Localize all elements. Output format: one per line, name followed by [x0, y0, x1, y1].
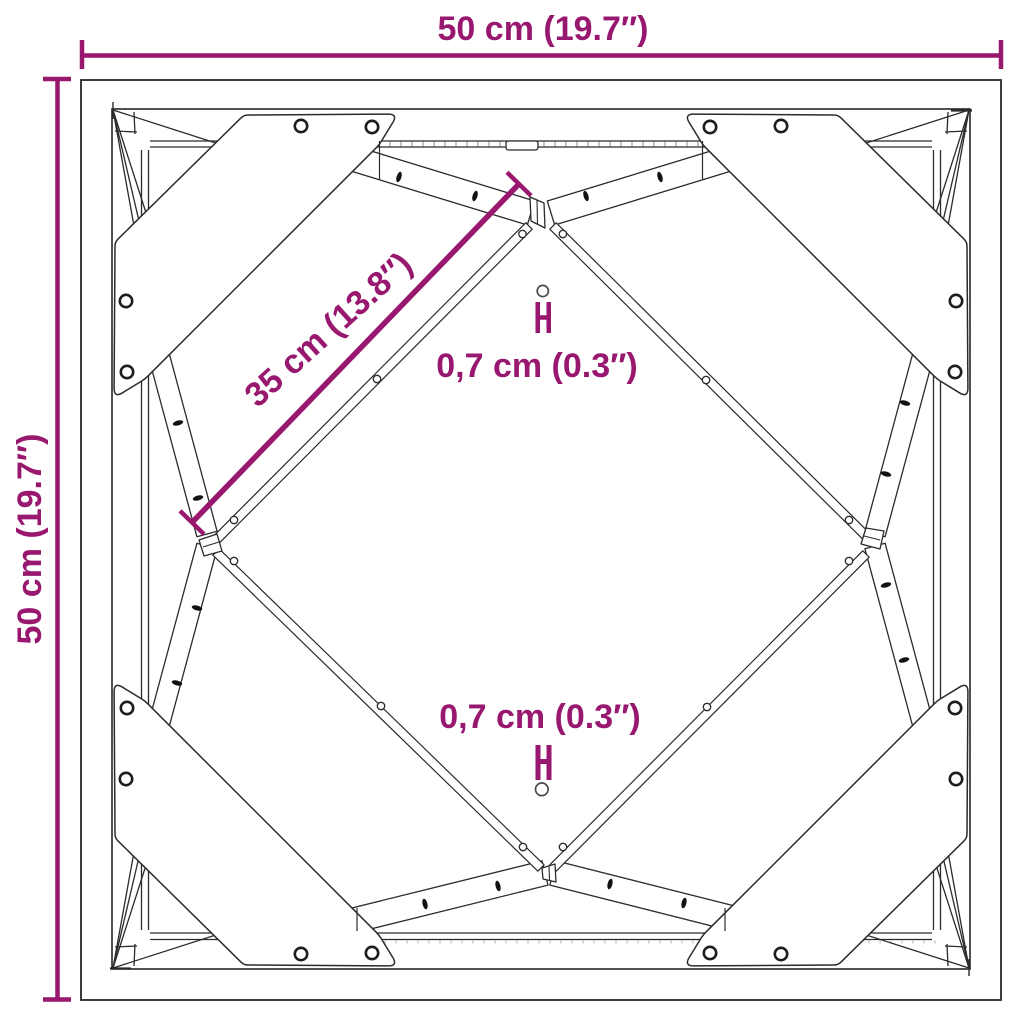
svg-text:50 cm (19.7″): 50 cm (19.7″) — [11, 434, 49, 645]
svg-text:50 cm (19.7″): 50 cm (19.7″) — [438, 10, 649, 48]
svg-text:0,7 cm (0.3″): 0,7 cm (0.3″) — [436, 347, 638, 385]
svg-text:0,7 cm (0.3″): 0,7 cm (0.3″) — [439, 698, 641, 736]
